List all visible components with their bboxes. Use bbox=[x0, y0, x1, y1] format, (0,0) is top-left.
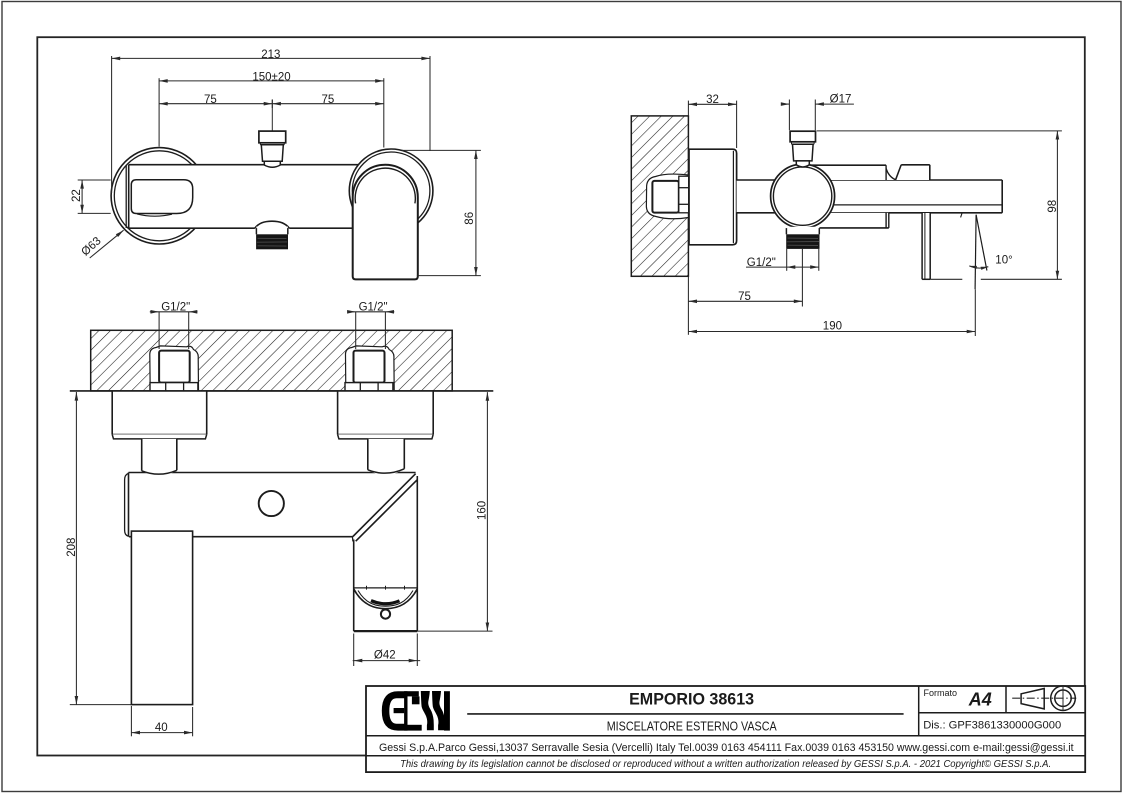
svg-text:Dis.: GPF3861330000G000: Dis.: GPF3861330000G000 bbox=[923, 720, 1061, 732]
svg-text:75: 75 bbox=[738, 291, 751, 303]
svg-text:10°: 10° bbox=[995, 255, 1012, 267]
svg-text:86: 86 bbox=[464, 212, 476, 225]
svg-text:75: 75 bbox=[204, 94, 217, 106]
svg-text:This drawing by its legislatio: This drawing by its legislation cannot b… bbox=[400, 759, 1051, 770]
svg-text:208: 208 bbox=[66, 538, 78, 557]
svg-text:75: 75 bbox=[322, 94, 335, 106]
svg-text:Ø42: Ø42 bbox=[374, 649, 396, 661]
svg-text:213: 213 bbox=[261, 49, 280, 61]
svg-text:A4: A4 bbox=[968, 690, 992, 710]
svg-text:EMPORIO 38613: EMPORIO 38613 bbox=[629, 689, 754, 708]
svg-text:32: 32 bbox=[706, 94, 719, 106]
svg-text:Formato: Formato bbox=[924, 688, 958, 698]
svg-text:MISCELATORE ESTERNO VASCA: MISCELATORE ESTERNO VASCA bbox=[607, 720, 778, 734]
svg-text:160: 160 bbox=[477, 501, 489, 520]
svg-text:190: 190 bbox=[823, 320, 842, 332]
svg-text:22: 22 bbox=[71, 189, 83, 202]
svg-text:150±20: 150±20 bbox=[252, 71, 290, 83]
svg-text:Ø17: Ø17 bbox=[830, 94, 852, 106]
svg-text:98: 98 bbox=[1047, 200, 1059, 213]
svg-text:40: 40 bbox=[155, 722, 168, 734]
svg-text:Gessi S.p.A.Parco Gessi,13037: Gessi S.p.A.Parco Gessi,13037 Serravalle… bbox=[379, 742, 1074, 754]
